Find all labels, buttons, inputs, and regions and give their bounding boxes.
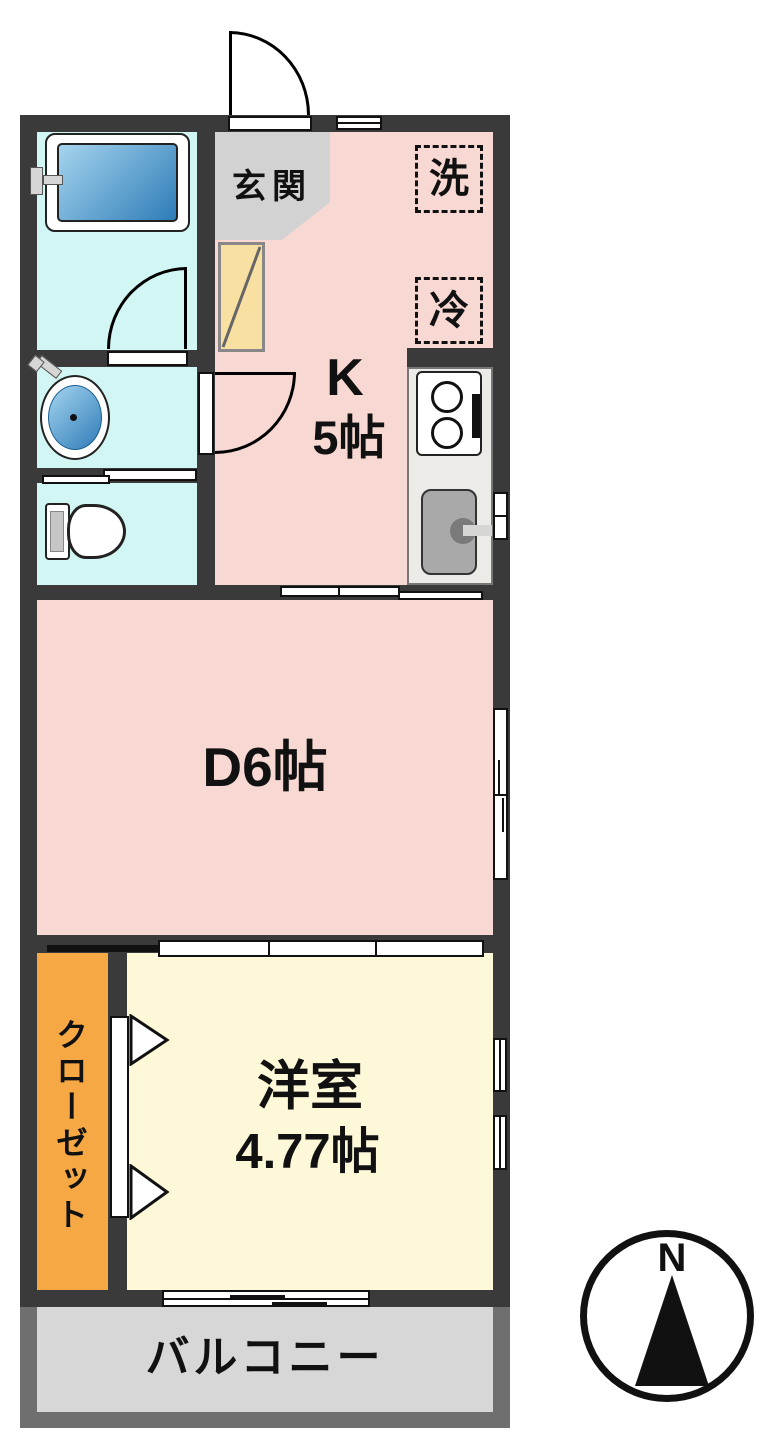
room-western xyxy=(127,953,493,1290)
dining-label: D6帖 xyxy=(180,740,350,795)
bathtub-faucet-spout xyxy=(43,175,63,185)
shoe-cabinet-diagonal xyxy=(221,245,262,349)
refrigerator-space: 冷 xyxy=(415,277,483,344)
balcony-wall-bottom xyxy=(20,1412,510,1428)
entrance-door-leaf xyxy=(228,116,312,131)
closet-door-triangle-1 xyxy=(129,1014,171,1066)
western-window-2 xyxy=(493,1115,507,1170)
balcony-label: バルコニー xyxy=(120,1336,410,1380)
stove-grill xyxy=(472,394,480,438)
bathroom-door-leaf xyxy=(107,351,188,366)
washroom-door-leaf xyxy=(198,372,214,455)
floor-plan: 洗 冷 xyxy=(0,0,777,1446)
wall-counter-stub xyxy=(407,348,493,367)
kitchen-label: K xyxy=(320,352,370,404)
kitchen-size-label: 5帖 xyxy=(295,414,403,461)
sink-faucet-spout xyxy=(463,525,492,536)
toilet-tank-lid xyxy=(50,511,64,552)
wall-left xyxy=(20,115,37,1307)
shoe-cabinet xyxy=(218,242,265,352)
western-room-label: 洋室 xyxy=(230,1060,390,1113)
closet-door-panel xyxy=(110,1016,129,1218)
balcony-sliding-door xyxy=(162,1290,370,1307)
compass-needle xyxy=(635,1275,709,1386)
washing-machine-label: 洗 xyxy=(429,159,469,199)
balcony-wall-right xyxy=(493,1307,510,1428)
genkan-label: 玄関 xyxy=(222,170,322,204)
toilet-sliding-door-panel-1 xyxy=(103,469,197,481)
kitchen-dining-sliding-panel-1 xyxy=(280,586,400,597)
entrance-door-swing xyxy=(229,31,310,115)
entrance-window xyxy=(336,116,382,130)
closet-door-triangle-2 xyxy=(129,1164,171,1220)
western-room-size-label: 4.77帖 xyxy=(200,1128,415,1177)
stove-burner-2 xyxy=(431,417,463,449)
western-sliding-door-track xyxy=(47,945,160,952)
closet-label: クローゼット xyxy=(54,1002,86,1250)
western-window-1 xyxy=(493,1038,507,1092)
refrigerator-label: 冷 xyxy=(429,291,469,331)
kitchen-dining-sliding-panel-2 xyxy=(398,591,483,600)
wall-leftcolumn-kitchen xyxy=(197,130,215,600)
dining-window xyxy=(493,708,508,880)
balcony-wall-left xyxy=(20,1307,37,1428)
washing-machine-space: 洗 xyxy=(415,145,483,213)
stove-burner-1 xyxy=(431,381,463,413)
kitchen-window xyxy=(493,492,508,540)
toilet-sliding-door-panel-2 xyxy=(42,475,110,484)
bathtub xyxy=(57,143,178,222)
north-label: N xyxy=(650,1238,694,1278)
washbasin-drain xyxy=(70,414,77,421)
bathtub-faucet xyxy=(30,167,43,195)
western-sliding-door-panels xyxy=(158,940,484,957)
